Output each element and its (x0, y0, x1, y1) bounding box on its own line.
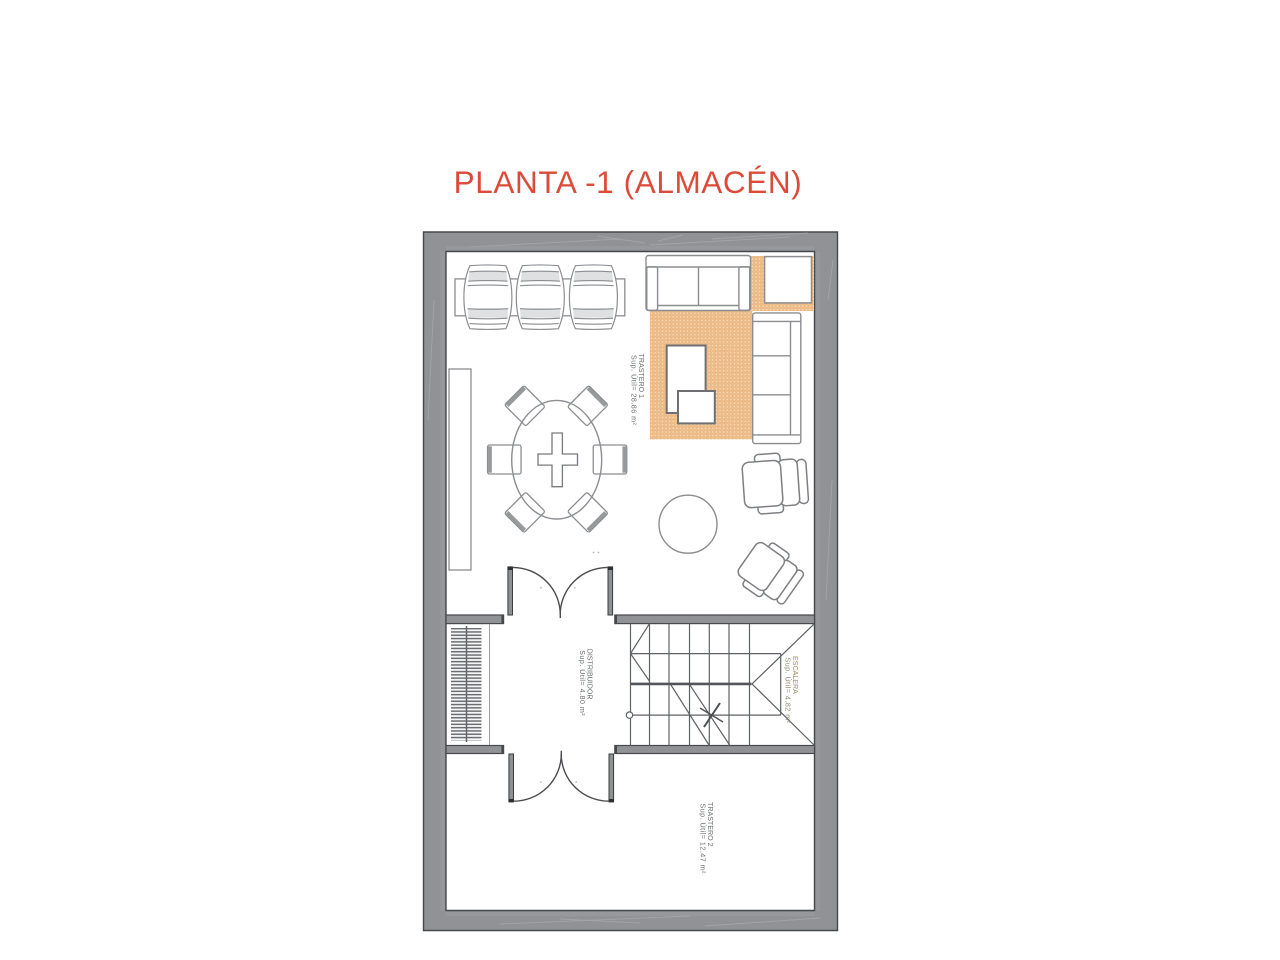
svg-text:ESCALERASup. Útil= 4.82 m²: ESCALERASup. Útil= 4.82 m² (784, 656, 800, 724)
svg-text:TRASTERO 2Sup. Útil= 12.47 m²: TRASTERO 2Sup. Útil= 12.47 m² (699, 802, 715, 874)
svg-text:TRASTERO 1Sup. Útil= 28.86 m²: TRASTERO 1Sup. Útil= 28.86 m² (630, 354, 646, 426)
svg-text:DISTRIBUIDORSup. Útil= 4.80 m²: DISTRIBUIDORSup. Útil= 4.80 m² (578, 649, 594, 717)
svg-text:PLANTA -1 (ALMACÉN): PLANTA -1 (ALMACÉN) (454, 164, 803, 200)
